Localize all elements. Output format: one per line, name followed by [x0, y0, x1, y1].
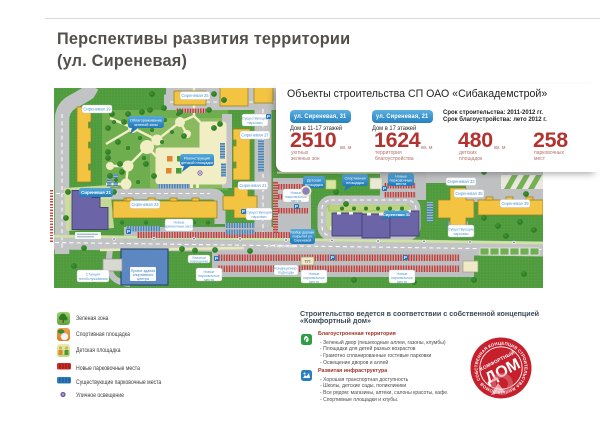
svg-text:детской площадки: детской площадки — [181, 161, 213, 165]
svg-text:освещение: освещение — [190, 260, 209, 264]
svg-text:техобслуживания: техобслуживания — [78, 277, 107, 281]
svg-text:Реконструкция: Реконструкция — [184, 156, 210, 160]
svg-text:ул. Сиреневая: ул. Сиреневая — [266, 243, 298, 248]
svg-text:Сиреневой: Сиреневой — [294, 239, 312, 243]
svg-text:центра: центра — [137, 277, 149, 281]
svg-text:Сиреневая 23: Сиреневая 23 — [131, 202, 159, 207]
svg-text:места: места — [291, 199, 301, 203]
svg-text:зеленой зоны: зеленой зоны — [134, 123, 158, 127]
svg-text:подъезды: подъезды — [278, 270, 295, 274]
svg-text:Сиреневая 35: Сиреневая 35 — [455, 191, 483, 196]
svg-text:Существующие: Существующие — [242, 116, 268, 120]
svg-text:Существующие: Существующие — [448, 227, 474, 231]
svg-text:парковочные места: парковочные места — [163, 224, 196, 228]
svg-text:ТП: ТП — [305, 259, 311, 264]
svg-text:Сиреневая 27: Сиреневая 27 — [241, 133, 269, 138]
svg-text:Сиреневая 39: Сиреневая 39 — [501, 201, 529, 206]
svg-text:места: места — [396, 182, 407, 186]
svg-text:Облагораживание: Облагораживание — [130, 118, 162, 122]
svg-text:Сиреневая 21: Сиреневая 21 — [81, 190, 111, 195]
svg-text:Станция: Станция — [86, 272, 100, 276]
svg-text:парковки: парковки — [453, 232, 468, 236]
svg-text:Сиреневая 19: Сиреневая 19 — [83, 107, 111, 112]
svg-text:Существующие: Существующие — [246, 210, 272, 214]
svg-text:Сиреневая 31: Сиреневая 31 — [383, 212, 411, 217]
svg-text:места: места — [309, 280, 319, 284]
svg-text:Спортивная: Спортивная — [344, 176, 365, 180]
svg-text:парковки: парковки — [247, 121, 262, 125]
svg-text:места: места — [397, 280, 407, 284]
svg-text:Сиреневая 33: Сиреневая 33 — [447, 179, 475, 184]
svg-text:места: места — [204, 278, 214, 282]
svg-text:площадка: площадка — [346, 181, 365, 185]
svg-text:Сиреневая 25: Сиреневая 25 — [181, 93, 209, 98]
svg-text:Сиреневая 21: Сиреневая 21 — [239, 183, 267, 188]
svg-text:парковки: парковки — [251, 215, 266, 219]
svg-text:Детская: Детская — [307, 178, 321, 182]
